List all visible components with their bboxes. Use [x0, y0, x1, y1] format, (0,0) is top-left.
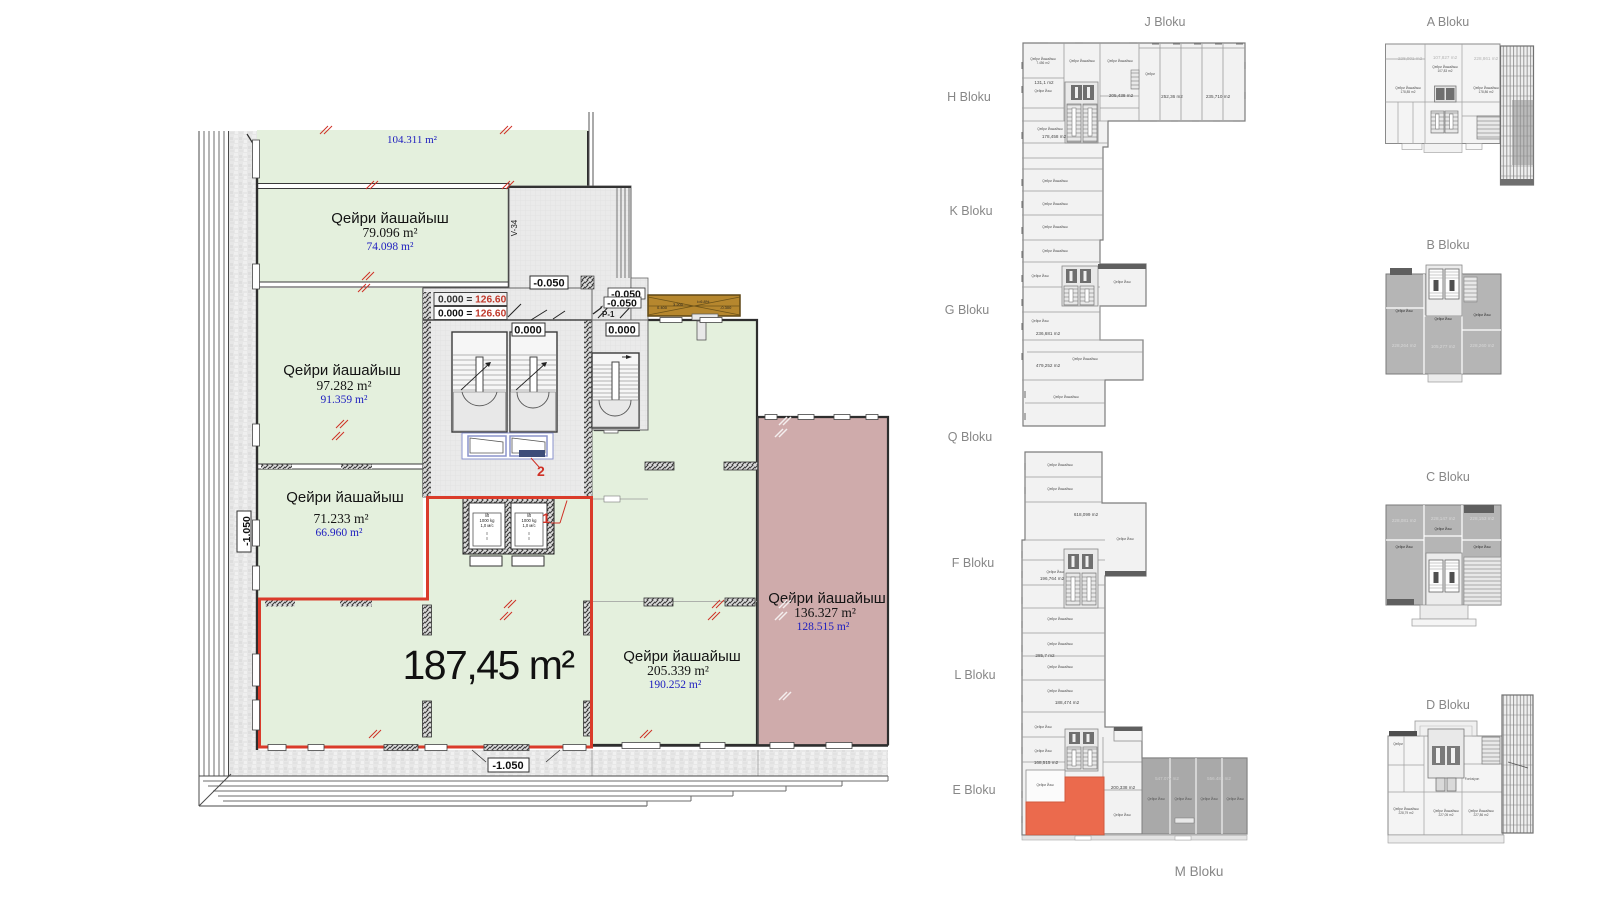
svg-text:Qейри Йаш: Qейри Йаш [1034, 749, 1052, 753]
svg-text:228,260 m2: 228,260 m2 [1470, 343, 1495, 348]
svg-text:B Bloku: B Bloku [1426, 238, 1469, 252]
svg-text:Qейри Йаш: Qейри Йаш [1046, 570, 1064, 574]
svg-text:178,458 m2: 178,458 m2 [1042, 134, 1067, 139]
svg-text:74.098 m²: 74.098 m² [367, 241, 414, 253]
svg-text:-1.050: -1.050 [241, 516, 253, 546]
svg-text:-1.050: -1.050 [492, 760, 523, 772]
svg-text:V-34: V-34 [510, 219, 519, 236]
svg-text:97.282 m²: 97.282 m² [316, 378, 371, 393]
svg-text:178,86 m2: 178,86 m2 [1478, 90, 1493, 94]
svg-text:104.311 m²: 104.311 m² [387, 134, 438, 146]
svg-text:Qейри Йаш: Qейри Йаш [1034, 89, 1052, 93]
svg-text:136.327 m²: 136.327 m² [794, 605, 856, 620]
svg-text:Qейри Йашайыш: Qейри Йашайыш [1042, 225, 1068, 229]
svg-text:227,86 m2: 227,86 m2 [1473, 813, 1488, 817]
svg-text:Q Bloku: Q Bloku [948, 430, 993, 444]
svg-text:228,001 m2: 228,001 m2 [1398, 56, 1423, 61]
svg-text:479,252 m2: 479,252 m2 [1036, 363, 1061, 368]
svg-text:Qейри Йаш: Qейри Йаш [1174, 797, 1192, 801]
svg-text:205.339 m²: 205.339 m² [647, 663, 709, 678]
svg-text:Qейри Йаш: Qейри Йаш [1034, 725, 1052, 729]
svg-text:A Bloku: A Bloku [1427, 15, 1469, 29]
svg-text:618,099 m2: 618,099 m2 [1074, 512, 1099, 517]
svg-text:Qейри йашайыш: Qейри йашайыш [283, 362, 401, 379]
svg-text:187,45 m²: 187,45 m² [402, 642, 574, 688]
svg-text:556.483 m2: 556.483 m2 [1207, 776, 1231, 781]
svg-text:Qейри йашайыш: Qейри йашайыш [286, 489, 404, 506]
svg-text:Qейри Йаш: Qейри Йаш [1036, 783, 1054, 787]
svg-text:107,827 m2: 107,827 m2 [1433, 55, 1458, 60]
svg-text:285,7 m2: 285,7 m2 [1035, 653, 1055, 658]
svg-text:Qейри Йашайыш: Qейри Йашайыш [1107, 59, 1133, 63]
svg-text:0.000: 0.000 [608, 325, 636, 337]
svg-text:131,1 m2: 131,1 m2 [1034, 80, 1054, 85]
svg-text:Qейри Йашайыш: Qейри Йашайыш [1042, 179, 1068, 183]
svg-text:66.960 m²: 66.960 m² [316, 527, 363, 539]
svg-text:205,438 m2: 205,438 m2 [1109, 93, 1134, 98]
svg-text:7.456 m2: 7.456 m2 [1036, 61, 1050, 65]
svg-text:228,264 m2: 228,264 m2 [1392, 343, 1417, 348]
svg-text:Qейри Йашайыш: Qейри Йашайыш [1047, 665, 1073, 669]
svg-text:Qейри Йаш: Qейри Йаш [1113, 813, 1131, 817]
svg-text:91.359 m²: 91.359 m² [321, 394, 368, 406]
svg-text:1: 1 [542, 510, 550, 526]
svg-text:Qейри Йаш: Qейри Йаш [1113, 280, 1131, 284]
svg-text:547.077 m2: 547.077 m2 [1155, 776, 1179, 781]
svg-text:1,0 м/с: 1,0 м/с [480, 523, 493, 528]
svg-text:-0.050: -0.050 [607, 298, 637, 310]
svg-text:Qейри Йаш: Qейри Йаш [1473, 545, 1491, 549]
svg-text:P-1: P-1 [602, 310, 615, 319]
svg-text:0.000 = 126.60: 0.000 = 126.60 [438, 309, 507, 320]
svg-text:105,277 m2: 105,277 m2 [1431, 344, 1456, 349]
svg-text:235,710 m2: 235,710 m2 [1206, 94, 1231, 99]
svg-text:Qейри Йаш: Qейри Йаш [1226, 797, 1244, 801]
svg-text:Qейри Йаш: Qейри Йаш [1473, 313, 1491, 317]
svg-text:Qейри Йашайыш: Qейри Йашайыш [1047, 463, 1073, 467]
svg-text:K Bloku: K Bloku [949, 204, 992, 218]
svg-text:228,081 m2: 228,081 m2 [1392, 518, 1417, 523]
svg-text:Qейри Йашайыш: Qейри Йашайыш [1072, 357, 1098, 361]
svg-text:M Bloku: M Bloku [1175, 864, 1224, 879]
svg-text:Qейри Йашайыш: Qейри Йашайыш [1053, 395, 1079, 399]
svg-text:236,681 m2: 236,681 m2 [1036, 331, 1061, 336]
svg-text:Qейри Йаш: Qейри Йаш [1434, 527, 1452, 531]
svg-text:D Bloku: D Bloku [1426, 698, 1470, 712]
svg-text:Qейри Йаш: Qейри Йаш [1434, 317, 1452, 321]
svg-text:79.096 m²: 79.096 m² [362, 225, 417, 240]
svg-text:Qейри Йаш: Qейри Йаш [1116, 537, 1134, 541]
svg-text:Qейри Йаш: Qейри Йаш [1031, 274, 1049, 278]
svg-text:227,05 m2: 227,05 m2 [1438, 813, 1453, 817]
svg-text:1,0 м/с: 1,0 м/с [522, 523, 535, 528]
svg-text:3.200: 3.200 [673, 302, 684, 307]
svg-text:Qейри Йашайыш: Qейри Йашайыш [1047, 689, 1073, 693]
svg-text:228,153 m2: 228,153 m2 [1470, 516, 1495, 521]
svg-text:Qейри Йашайыш: Qейри Йашайыш [1047, 617, 1073, 621]
svg-text:2: 2 [537, 463, 545, 479]
svg-text:G Bloku: G Bloku [945, 303, 990, 317]
svg-text:Qейри Йашайыш: Qейри Йашайыш [1037, 127, 1063, 131]
svg-text:L Bloku: L Bloku [954, 668, 995, 682]
svg-text:190.252 m²: 190.252 m² [649, 679, 702, 691]
svg-text:71.233 m²: 71.233 m² [313, 511, 368, 526]
svg-text:228,79 m2: 228,79 m2 [1398, 811, 1413, 815]
svg-text:0.000 = 126.60: 0.000 = 126.60 [438, 295, 507, 306]
svg-text:107,83 m2: 107,83 m2 [1437, 69, 1452, 73]
svg-text:-0.050: -0.050 [533, 278, 564, 290]
svg-text:188,474 m2: 188,474 m2 [1055, 700, 1080, 705]
svg-text:Qейри Йашайыш: Qейри Йашайыш [1042, 202, 1068, 206]
svg-text:228,861 m2: 228,861 m2 [1474, 56, 1499, 61]
svg-text:Qейри Йашайыш: Qейри Йашайыш [1069, 59, 1095, 63]
svg-text:C Bloku: C Bloku [1426, 470, 1470, 484]
svg-text:0.400: 0.400 [657, 305, 668, 310]
svg-text:Qейри Йаш: Qейри Йаш [1395, 309, 1413, 313]
svg-text:Qейри: Qейри [1145, 72, 1155, 76]
svg-text:Fonksiyon: Fonksiyon [1465, 777, 1480, 781]
svg-text:Qейри Йаш: Qейри Йаш [1031, 319, 1049, 323]
svg-text:-0.300: -0.300 [720, 305, 732, 310]
svg-text:178,85 m2: 178,85 m2 [1400, 90, 1415, 94]
svg-text:128.515 m²: 128.515 m² [797, 621, 850, 633]
svg-text:Qейри Йашайыш: Qейри Йашайыш [1047, 642, 1073, 646]
svg-text:Qейри: Qейри [1393, 742, 1403, 746]
svg-text:0.000: 0.000 [514, 325, 542, 337]
svg-text:Qейри Йаш: Qейри Йаш [1200, 797, 1218, 801]
svg-text:196,764 m2: 196,764 m2 [1040, 576, 1065, 581]
svg-text:J Bloku: J Bloku [1145, 15, 1186, 29]
svg-text:168,515 m2: 168,515 m2 [1034, 760, 1059, 765]
svg-text:i=6.8%: i=6.8% [697, 299, 710, 304]
svg-text:F Bloku: F Bloku [952, 556, 994, 570]
svg-text:Qейри Йашайыш: Qейри Йашайыш [1042, 249, 1068, 253]
svg-text:Qейри Йашайыш: Qейри Йашайыш [1047, 487, 1073, 491]
svg-text:252,36 m2: 252,36 m2 [1161, 94, 1183, 99]
svg-text:E Bloku: E Bloku [952, 783, 995, 797]
svg-text:228,147 m2: 228,147 m2 [1431, 516, 1456, 521]
svg-text:Qейри Йаш: Qейри Йаш [1395, 545, 1413, 549]
svg-text:H Bloku: H Bloku [947, 90, 991, 104]
svg-text:Qейри Йаш: Qейри Йаш [1147, 797, 1165, 801]
svg-text:200,338 m2: 200,338 m2 [1111, 785, 1136, 790]
